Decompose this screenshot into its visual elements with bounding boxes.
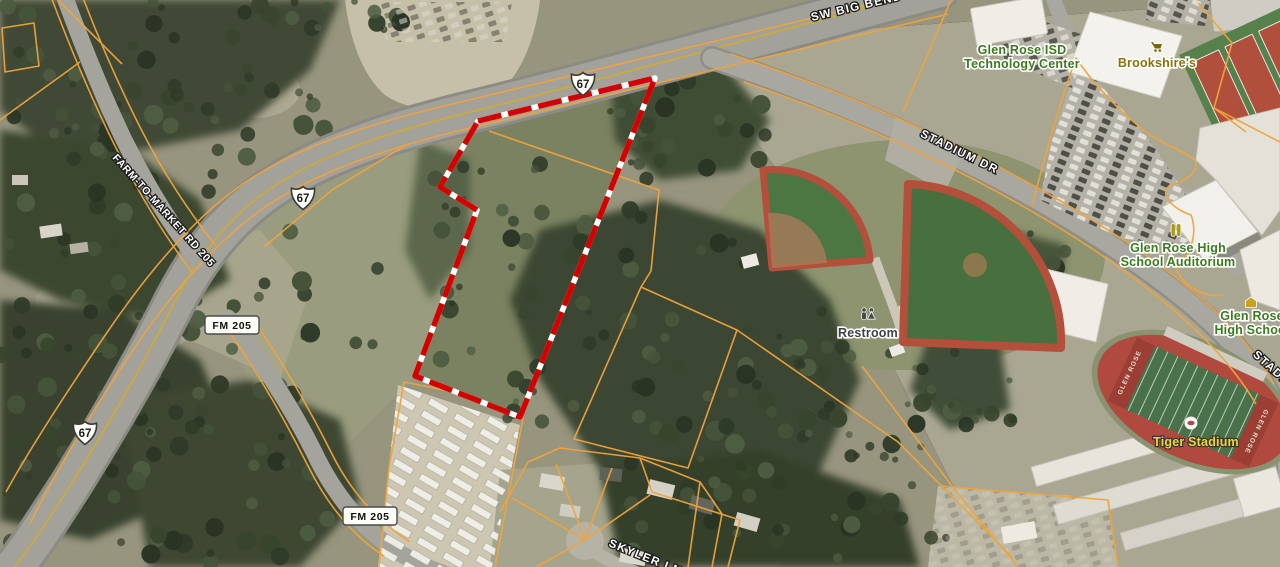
svg-text:Glen Rose ISD: Glen Rose ISD: [978, 43, 1067, 57]
svg-text:School Auditorium: School Auditorium: [1121, 255, 1236, 269]
svg-text:67: 67: [297, 193, 310, 205]
svg-text:Brookshire's: Brookshire's: [1118, 56, 1196, 70]
svg-text:Technology Center: Technology Center: [964, 57, 1080, 71]
map-canvas[interactable]: GLEN ROSE GLEN ROSE: [0, 0, 1280, 567]
svg-text:High School: High School: [1214, 323, 1280, 337]
svg-text:67: 67: [79, 428, 92, 440]
fm205-badge: FM 205: [343, 507, 397, 525]
aerial-parcel-map[interactable]: GLEN ROSE GLEN ROSE: [0, 0, 1280, 567]
stadium-icon: [1185, 417, 1198, 430]
svg-text:FM 205: FM 205: [212, 320, 251, 332]
svg-text:Glen Rose High: Glen Rose High: [1130, 241, 1226, 255]
fm205-badge: FM 205: [205, 316, 259, 334]
poi-tech-center: Glen Rose ISD Technology Center: [964, 43, 1080, 71]
svg-text:FM 205: FM 205: [350, 511, 389, 523]
svg-text:67: 67: [577, 79, 590, 91]
svg-text:Glen Rose: Glen Rose: [1220, 309, 1280, 323]
svg-text:Tiger Stadium: Tiger Stadium: [1153, 435, 1239, 449]
svg-text:Restroom: Restroom: [838, 326, 898, 340]
